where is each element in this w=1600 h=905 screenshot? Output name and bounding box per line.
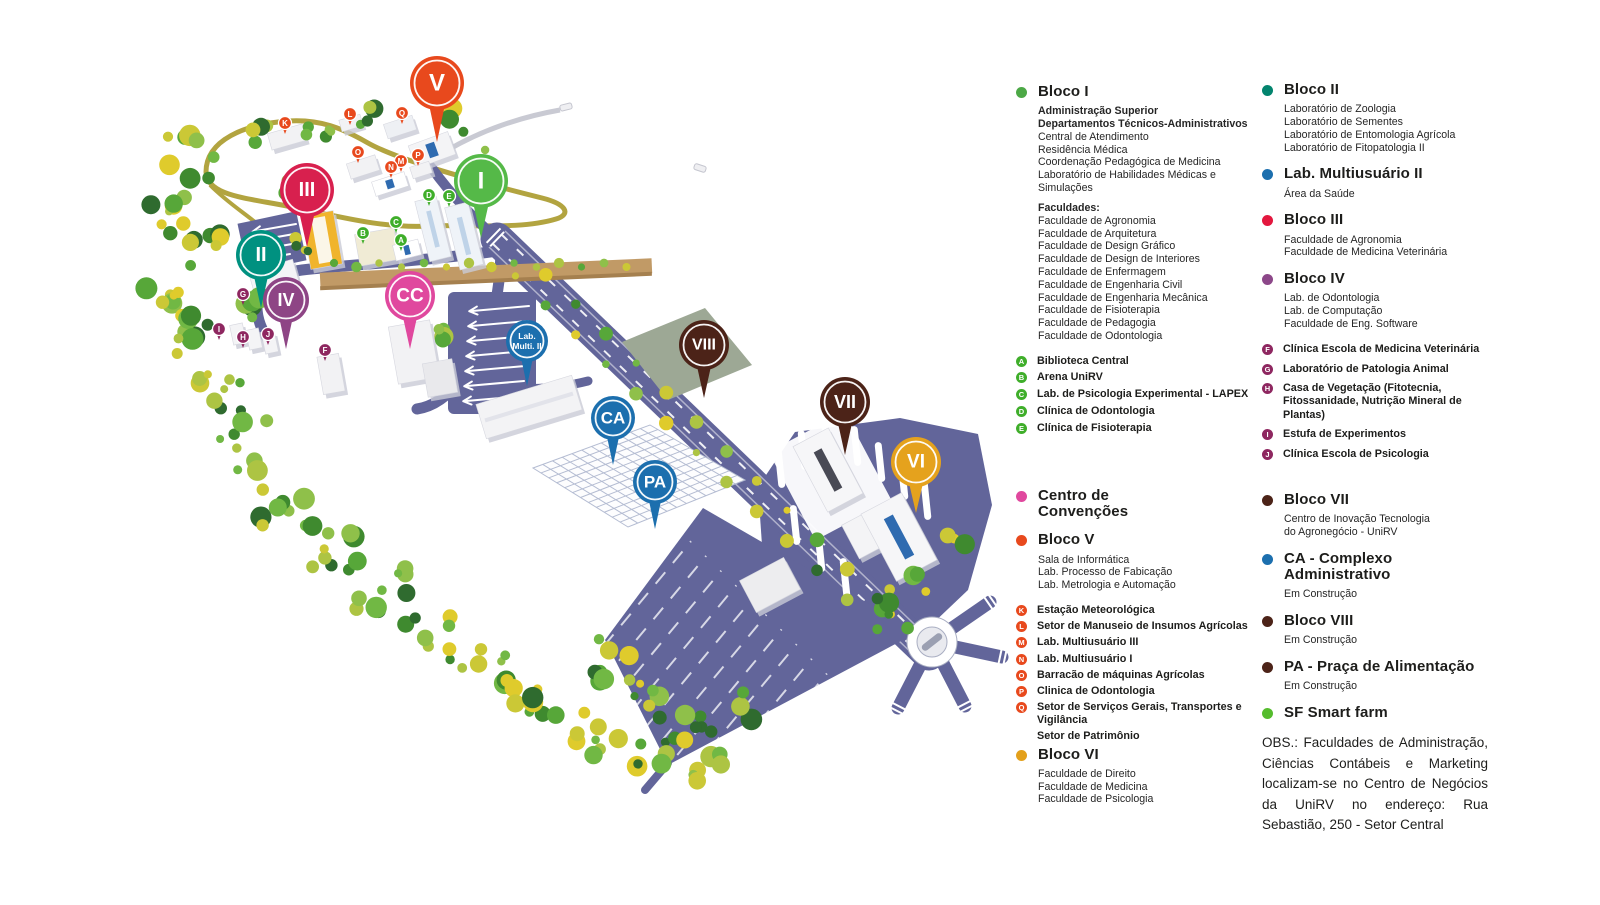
legend-section: Bloco IILaboratório de ZoologiaLaboratór… — [1262, 82, 1502, 154]
legend-section: Bloco VIFaculdade de DireitoFaculdade de… — [1016, 747, 1256, 807]
legend-dot — [1262, 616, 1273, 627]
legend-section-header: CA - Complexo Administrativo — [1262, 551, 1502, 583]
legend-section: Centro de Convenções — [1016, 488, 1256, 520]
svg-text:J: J — [266, 330, 270, 339]
legend-item: Departamentos Técnicos-Administrativos — [1038, 118, 1256, 131]
legend-section-items: Lab. de OdontologiaLab. de ComputaçãoFac… — [1284, 292, 1502, 330]
legend-letter-label: Clínica Escola de Medicina Veterinária — [1283, 343, 1479, 356]
legend-section: Bloco IIIFaculdade de AgronomiaFaculdade… — [1262, 212, 1502, 259]
legend-section-items: Sala de InformáticaLab. Processo de Fabi… — [1038, 554, 1256, 592]
legend-section-header: Lab. Multiusuário II — [1262, 166, 1502, 182]
legend-dot — [1262, 495, 1273, 506]
legend-letter-item: LSetor de Manuseio de Insumos Agrícolas — [1016, 620, 1256, 633]
legend-obs-note: OBS.: Faculdades de Administração, Ciênc… — [1262, 733, 1488, 836]
legend-item: Faculdade de Agronomia — [1038, 215, 1256, 228]
legend-letter-label: Clínica de Fisioterapia — [1037, 422, 1152, 435]
legend-item: Sala de Informática — [1038, 554, 1256, 567]
legend-item: Faculdade de Enfermagem — [1038, 266, 1256, 279]
legend-item: Faculdade de Agronomia — [1284, 234, 1502, 247]
legend-section-header: Bloco IV — [1262, 271, 1502, 287]
legend-dot — [1262, 708, 1273, 719]
legend-letter-item: HCasa de Vegetação (Fitotecnia, Fitossan… — [1262, 382, 1502, 422]
legend-letter-badge: N — [1016, 654, 1027, 665]
legend-item: Faculdade de Psicologia — [1038, 793, 1256, 806]
legend-item: Laboratório de Sementes — [1284, 116, 1502, 129]
legend-section-items: Administração SuperiorDepartamentos Técn… — [1038, 105, 1256, 343]
legend-section: Lab. Multiusuário IIÁrea da Saúde — [1262, 166, 1502, 200]
legend-letter-label: Clinica de Odontologia — [1037, 685, 1155, 698]
legend-item: Faculdade de Arquitetura — [1038, 228, 1256, 241]
legend-section: Bloco VSala de InformáticaLab. Processo … — [1016, 532, 1256, 592]
legend-dot — [1262, 215, 1273, 226]
legend-letter-badge: C — [1016, 389, 1027, 400]
legend-letter-label: Laboratório de Patologia Animal — [1283, 363, 1449, 376]
legend-letter-item: MLab. Multiusuário III — [1016, 636, 1256, 649]
legend-section-title: PA - Praça de Alimentação — [1284, 659, 1474, 675]
legend-section-items: Faculdade de AgronomiaFaculdade de Medic… — [1284, 234, 1502, 260]
legend-item: Em Construção — [1284, 588, 1502, 601]
legend-letter-label: Casa de Vegetação (Fitotecnia, Fitossani… — [1283, 382, 1502, 422]
legend-letter-label: Estação Meteorológica — [1037, 604, 1155, 617]
legend-letter-badge: B — [1016, 372, 1027, 383]
svg-text:Q: Q — [399, 109, 405, 118]
legend-item: Faculdades: — [1038, 202, 1256, 215]
legend-section: Bloco IVLab. de OdontologiaLab. de Compu… — [1262, 271, 1502, 331]
legend-item: Lab. de Odontologia — [1284, 292, 1502, 305]
legend-item: Lab. de Computação — [1284, 305, 1502, 318]
svg-text:K: K — [282, 119, 288, 128]
legend-item: Coordenação Pedagógica de Medicina — [1038, 156, 1256, 169]
legend-letter-item: KEstação Meteorológica — [1016, 604, 1256, 617]
legend-section-items: Em Construção — [1284, 680, 1502, 693]
legend-letter-item: IEstufa de Experimentos — [1262, 428, 1502, 441]
svg-text:B: B — [360, 229, 366, 238]
legend-section: Bloco IAdministração SuperiorDepartament… — [1016, 84, 1256, 343]
legend-item: Laboratório de Fitopatologia II — [1284, 142, 1502, 155]
legend-letter-badge: A — [1016, 356, 1027, 367]
legend-section-title: Bloco VII — [1284, 492, 1349, 508]
legend-section-title: Bloco VIII — [1284, 613, 1353, 629]
svg-text:IV: IV — [277, 290, 294, 310]
svg-text:G: G — [240, 290, 246, 299]
svg-text:I: I — [478, 168, 485, 195]
legend-letter-badge: Q — [1016, 702, 1027, 713]
legend-section-header: Bloco III — [1262, 212, 1502, 228]
legend-section-header: SF Smart farm — [1262, 705, 1502, 721]
legend-letter-item: QSetor de Serviços Gerais, Transportes e… — [1016, 701, 1256, 727]
legend-letter-label: Lab. de Psicologia Experimental - LAPEX — [1037, 388, 1248, 401]
legend-section-header: Bloco II — [1262, 82, 1502, 98]
legend-item: Área da Saúde — [1284, 188, 1502, 201]
legend-letter-label: Barracão de máquinas Agrícolas — [1037, 669, 1205, 682]
legend-item: Lab. Metrologia e Automação — [1038, 579, 1256, 592]
legend-letter-badge: P — [1016, 686, 1027, 697]
legend-item: Faculdade de Design de Interiores — [1038, 253, 1256, 266]
legend-item: Faculdade de Medicina — [1038, 781, 1256, 794]
svg-text:CC: CC — [396, 286, 424, 307]
svg-text:VIII: VIII — [692, 337, 716, 354]
legend-section-items: Laboratório de ZoologiaLaboratório de Se… — [1284, 103, 1502, 154]
legend-right-top: Bloco IILaboratório de ZoologiaLaboratór… — [1262, 82, 1502, 468]
legend-item: Central de Atendimento — [1038, 131, 1256, 144]
svg-text:II: II — [255, 244, 266, 266]
legend-section-items: Em Construção — [1284, 588, 1502, 601]
campus-map: ABCDEFGHIJKLMNOPQVIIIIIIIVCCLab.Multi. I… — [0, 0, 1010, 900]
legend-left-bottom: Centro de ConvençõesBloco VSala de Infor… — [1016, 488, 1256, 818]
legend-dot — [1262, 169, 1273, 180]
legend-letter-item: GLaboratório de Patologia Animal — [1262, 363, 1502, 376]
legend-section-title: Centro de Convenções — [1038, 488, 1128, 520]
legend-letter-item: EClínica de Fisioterapia — [1016, 422, 1256, 435]
legend-item: do Agronegócio - UniRV — [1284, 526, 1502, 539]
legend-section: Bloco VIIIEm Construção — [1262, 613, 1502, 647]
legend-letter-label: Estufa de Experimentos — [1283, 428, 1406, 441]
legend-section-header: Bloco VI — [1016, 747, 1256, 763]
legend-letter-badge: G — [1262, 364, 1273, 375]
legend-letter-item: NLab. Multiusuário I — [1016, 653, 1256, 666]
roundabout — [907, 617, 957, 667]
legend-section-header: Bloco I — [1016, 84, 1256, 100]
legend-dot — [1016, 535, 1027, 546]
legend-letter-badge: O — [1016, 670, 1027, 681]
legend-section-header: Bloco VIII — [1262, 613, 1502, 629]
legend-letter-item: JClínica Escola de Psicologia — [1262, 448, 1502, 461]
legend-section-items: Em Construção — [1284, 634, 1502, 647]
legend-section-header: Bloco V — [1016, 532, 1256, 548]
legend-item: Faculdade de Odontologia — [1038, 330, 1256, 343]
legend-item: Laboratório de Zoologia — [1284, 103, 1502, 116]
legend-section-title: SF Smart farm — [1284, 705, 1388, 721]
svg-text:P: P — [415, 151, 421, 160]
field-loop-path — [206, 121, 565, 227]
legend-letter-badge: F — [1262, 344, 1273, 355]
svg-text:C: C — [393, 218, 399, 227]
legend-item: Lab. Processo de Fabicação — [1038, 566, 1256, 579]
legend-letter-label: Setor de Serviços Gerais, Transportes e … — [1037, 701, 1256, 727]
legend-letter-label: Clínica Escola de Psicologia — [1283, 448, 1429, 461]
legend-section-title: Bloco III — [1284, 212, 1343, 228]
legend-item: Residência Médica — [1038, 144, 1256, 157]
legend-dot — [1262, 554, 1273, 565]
svg-text:O: O — [355, 148, 361, 157]
svg-text:E: E — [446, 192, 452, 201]
legend-section: CA - Complexo AdministrativoEm Construçã… — [1262, 551, 1502, 601]
legend-letter-item: DClínica de Odontologia — [1016, 405, 1256, 418]
svg-text:CA: CA — [601, 409, 626, 428]
legend-item: Centro de Inovação Tecnologia — [1284, 513, 1502, 526]
svg-text:III: III — [299, 179, 316, 201]
legend-item: Faculdade de Engenharia Mecânica — [1038, 292, 1256, 305]
legend-section: SF Smart farm — [1262, 705, 1502, 721]
legend-dot — [1262, 274, 1273, 285]
legend-section-title: Bloco I — [1038, 84, 1089, 100]
svg-text:PA: PA — [644, 473, 666, 492]
legend-section: PA - Praça de AlimentaçãoEm Construção — [1262, 659, 1502, 693]
legend-letter-item: BArena UniRV — [1016, 371, 1256, 384]
legend-dot — [1016, 491, 1027, 502]
legend-letter-badge: I — [1262, 429, 1273, 440]
legend-right-bottom: Bloco VIICentro de Inovação Tecnologiado… — [1262, 492, 1502, 836]
svg-text:M: M — [398, 157, 405, 166]
legend-item: Laboratório de Habilidades Médicas e Sim… — [1038, 169, 1256, 195]
legend-letter-badge: K — [1016, 605, 1027, 616]
legend-dot — [1016, 87, 1027, 98]
legend-letter-item: FClínica Escola de Medicina Veterinária — [1262, 343, 1502, 356]
legend-item: Administração Superior — [1038, 105, 1256, 118]
legend-section-header: Bloco VII — [1262, 492, 1502, 508]
legend-letter-badge: H — [1262, 383, 1273, 394]
legend-left-top: Bloco IAdministração SuperiorDepartament… — [1016, 84, 1256, 438]
campus-map-svg: ABCDEFGHIJKLMNOPQVIIIIIIIVCCLab.Multi. I… — [0, 0, 1010, 900]
svg-text:I: I — [218, 325, 220, 334]
legend-dot — [1262, 85, 1273, 96]
legend-section-title: Bloco VI — [1038, 747, 1099, 763]
svg-text:D: D — [426, 191, 432, 200]
legend-letter-label: Lab. Multiusuário III — [1037, 636, 1138, 649]
legend-letter-item: CLab. de Psicologia Experimental - LAPEX — [1016, 388, 1256, 401]
legend-letter-label: Lab. Multiusuário I — [1037, 653, 1132, 666]
legend-section-title: Bloco IV — [1284, 271, 1345, 287]
legend-letter-badge: D — [1016, 406, 1027, 417]
legend-item: Faculdade de Eng. Software — [1284, 318, 1502, 331]
legend-item: Em Construção — [1284, 680, 1502, 693]
legend-section-header: PA - Praça de Alimentação — [1262, 659, 1502, 675]
map-badge-E: E — [443, 190, 456, 208]
legend-letter-label: Clínica de Odontologia — [1037, 405, 1155, 418]
svg-text:N: N — [388, 163, 394, 172]
svg-text:V: V — [429, 70, 445, 97]
legend-section-title: Bloco II — [1284, 82, 1339, 98]
legend-section-items: Área da Saúde — [1284, 188, 1502, 201]
svg-text:L: L — [348, 110, 353, 119]
legend-section: Bloco VIICentro de Inovação Tecnologiado… — [1262, 492, 1502, 539]
legend-dot — [1016, 750, 1027, 761]
legend-letter-list: FClínica Escola de Medicina VeterináriaG… — [1262, 343, 1502, 461]
svg-text:A: A — [398, 236, 404, 245]
legend-letter-label: Setor de Patrimônio — [1037, 730, 1140, 743]
legend-item: Faculdade de Pedagogia — [1038, 317, 1256, 330]
legend-letter-badge: E — [1016, 423, 1027, 434]
svg-text:F: F — [323, 346, 328, 355]
legend-letter-list: ABiblioteca CentralBArena UniRVCLab. de … — [1016, 355, 1256, 435]
legend-letter-badge: J — [1262, 449, 1273, 460]
legend-letter-label: Setor de Manuseio de Insumos Agrícolas — [1037, 620, 1248, 633]
svg-text:VI: VI — [907, 452, 925, 473]
legend-letter-badge: L — [1016, 621, 1027, 632]
legend-item: Em Construção — [1284, 634, 1502, 647]
legend-item: Faculdade de Design Gráfico — [1038, 240, 1256, 253]
legend-section-title: Lab. Multiusuário II — [1284, 166, 1423, 182]
legend-letter-item: OBarracão de máquinas Agrícolas — [1016, 669, 1256, 682]
legend-section-title: CA - Complexo Administrativo — [1284, 551, 1392, 583]
legend-letter-label: Arena UniRV — [1037, 371, 1103, 384]
legend-letter-item: ABiblioteca Central — [1016, 355, 1256, 368]
map-badge-I: I — [213, 323, 226, 341]
legend-letter-list: KEstação MeteorológicaLSetor de Manuseio… — [1016, 604, 1256, 744]
legend-item: Faculdade de Fisioterapia — [1038, 304, 1256, 317]
legend-section-items: Faculdade de DireitoFaculdade de Medicin… — [1038, 768, 1256, 806]
legend-dot — [1262, 662, 1273, 673]
legend-letter-label: Biblioteca Central — [1037, 355, 1129, 368]
legend-section-header: Centro de Convenções — [1016, 488, 1256, 520]
legend-letter-item: PClinica de Odontologia — [1016, 685, 1256, 698]
legend-item: Faculdade de Direito — [1038, 768, 1256, 781]
legend-item: Faculdade de Engenharia Civil — [1038, 279, 1256, 292]
svg-text:VII: VII — [834, 392, 856, 412]
legend-letter-badge: M — [1016, 637, 1027, 648]
legend-section-items: Centro de Inovação Tecnologiado Agronegó… — [1284, 513, 1502, 539]
legend-section-title: Bloco V — [1038, 532, 1095, 548]
legend-item: Laboratório de Entomologia Agrícola — [1284, 129, 1502, 142]
legend-item: Faculdade de Medicina Veterinária — [1284, 246, 1502, 259]
legend-letter-item: Setor de Patrimônio — [1016, 730, 1256, 743]
svg-text:H: H — [240, 333, 246, 342]
